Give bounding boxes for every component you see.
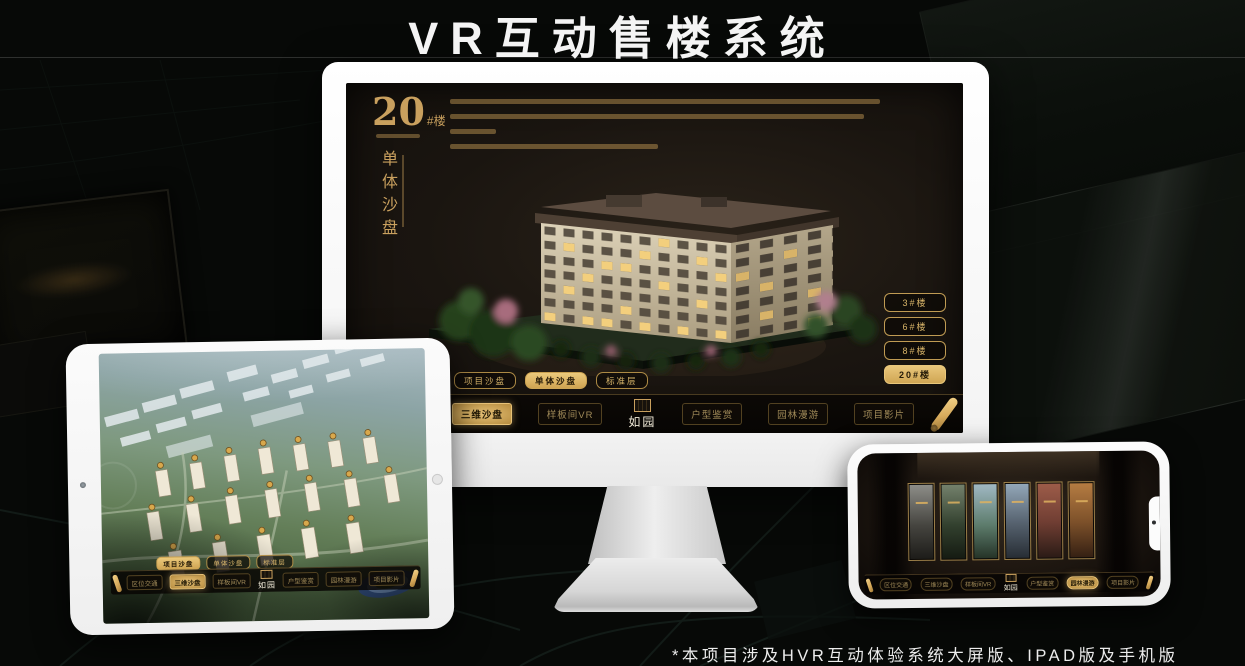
building-title: 20#楼 — [372, 93, 446, 138]
nav-item-showroom-vr[interactable]: 样板间VR — [961, 577, 995, 590]
nav-item-floorplan[interactable]: 户型鉴赏 — [1026, 576, 1058, 589]
scroll-left-icon[interactable] — [865, 578, 873, 593]
page-title: VR互动售楼系统 — [0, 2, 1245, 67]
brand-logo[interactable]: 如园 — [1004, 574, 1018, 593]
nav-item-project-video[interactable]: 项目影片 — [368, 570, 404, 586]
scene-card-image — [1038, 483, 1062, 557]
phone-device: 区位交通 三维沙盘 样板间VR 如园 户型鉴赏 园林漫游 项目影片 — [847, 441, 1171, 608]
nav-item-location[interactable]: 区位交通 — [880, 578, 912, 591]
floor-button-20[interactable]: 20#楼 — [884, 365, 946, 384]
poster-canvas: VR互动售楼系统 *本项目涉及HVR互动体验系统大屏版、IPAD版及手机版 20… — [0, 0, 1245, 666]
footnote-text: *本项目涉及HVR互动体验系统大屏版、IPAD版及手机版 — [672, 642, 1179, 666]
tab-project-sandtable[interactable]: 项目沙盘 — [454, 372, 516, 389]
nav-item-showroom-vr[interactable]: 样板间VR — [212, 573, 251, 589]
scene-card-image — [974, 484, 998, 558]
description-line — [450, 114, 864, 119]
tablet-device: 项目沙盘 单体沙盘 标准层 区位交通 三维沙盘 样板间VR 如园 户型鉴赏 园林… — [65, 338, 454, 636]
scene-card-image — [1006, 484, 1030, 558]
nav-item-3d-sandtable[interactable]: 三维沙盘 — [920, 578, 952, 591]
description-text-lines — [450, 99, 886, 159]
phone-screen: 区位交通 三维沙盘 样板间VR 如园 户型鉴赏 园林漫游 项目影片 — [857, 450, 1161, 599]
nav-item-3d-sandtable[interactable]: 三维沙盘 — [169, 574, 205, 590]
scene-card-image — [910, 485, 934, 559]
scene-card-tower[interactable] — [1004, 482, 1032, 560]
floor-button-6[interactable]: 6#楼 — [884, 317, 946, 336]
scene-card-study[interactable] — [1068, 481, 1096, 559]
floor-selector: 3#楼 6#楼 8#楼 20#楼 — [884, 293, 946, 384]
tablet-screen: 项目沙盘 单体沙盘 标准层 区位交通 三维沙盘 样板间VR 如园 户型鉴赏 园林… — [99, 348, 430, 624]
brand-logo-text: 如园 — [1004, 583, 1018, 593]
sandtable-mode-tabs: 项目沙盘 单体沙盘 标准层 — [454, 372, 648, 389]
description-line — [450, 129, 496, 134]
nav-item-project-video[interactable]: 项目影片 — [1107, 576, 1139, 589]
description-line — [450, 144, 658, 149]
nav-item-garden-tour[interactable]: 园林漫游 — [1067, 576, 1099, 589]
background-map-grid — [0, 60, 330, 210]
scroll-right-icon[interactable] — [409, 568, 419, 587]
scroll-left-icon[interactable] — [112, 574, 123, 593]
tab-standard-floor[interactable]: 标准层 — [596, 372, 648, 389]
description-line — [450, 99, 880, 104]
tablet-home-button[interactable] — [432, 474, 443, 485]
phone-nav-bar: 区位交通 三维沙盘 样板间VR 如园 户型鉴赏 园林漫游 项目影片 — [865, 571, 1155, 594]
nav-item-3d-sandtable[interactable]: 三维沙盘 — [452, 403, 512, 425]
phone-notch — [1149, 496, 1161, 550]
building-title-caption-line — [376, 134, 420, 138]
brand-logo[interactable]: 如园 — [258, 570, 276, 591]
brand-logo-text: 如园 — [258, 580, 276, 591]
brand-logo-text: 如园 — [628, 413, 656, 430]
brand-seal-icon — [261, 570, 273, 579]
nav-item-floorplan[interactable]: 户型鉴赏 — [682, 403, 742, 425]
subtitle-vertical: 单体沙盘 — [376, 150, 400, 242]
floor-button-3[interactable]: 3#楼 — [884, 293, 946, 312]
scene-card-interior[interactable] — [908, 483, 936, 561]
tablet-camera-icon — [80, 482, 86, 488]
nav-item-floorplan[interactable]: 户型鉴赏 — [283, 572, 319, 588]
brand-seal-icon — [634, 399, 651, 412]
scene-card-building[interactable] — [972, 482, 1000, 560]
scroll-right-icon[interactable] — [1146, 575, 1154, 590]
floor-button-8[interactable]: 8#楼 — [884, 341, 946, 360]
scene-card-courtyard[interactable] — [940, 482, 968, 560]
building-unit-label: #楼 — [427, 114, 446, 128]
scene-card-image — [942, 484, 966, 558]
building-render[interactable] — [401, 161, 881, 376]
scene-card-gallery — [908, 481, 1096, 561]
brand-seal-icon — [1005, 574, 1016, 582]
nav-item-location[interactable]: 区位交通 — [126, 575, 162, 591]
interior-ceiling-glow — [918, 451, 1099, 479]
scene-card-image — [1070, 483, 1094, 557]
scene-card-red-facade[interactable] — [1036, 481, 1064, 559]
brand-logo[interactable]: 如园 — [628, 399, 656, 430]
tab-single-sandtable[interactable]: 单体沙盘 — [525, 372, 587, 389]
nav-item-project-video[interactable]: 项目影片 — [854, 403, 914, 425]
scroll-menu-icon[interactable] — [930, 396, 960, 432]
monitor-stand-neck — [588, 486, 726, 564]
nav-item-garden-tour[interactable]: 园林漫游 — [768, 403, 828, 425]
building-number: 20 — [372, 89, 425, 134]
nav-item-garden-tour[interactable]: 园林漫游 — [326, 571, 362, 587]
nav-item-showroom-vr[interactable]: 样板间VR — [538, 403, 603, 425]
